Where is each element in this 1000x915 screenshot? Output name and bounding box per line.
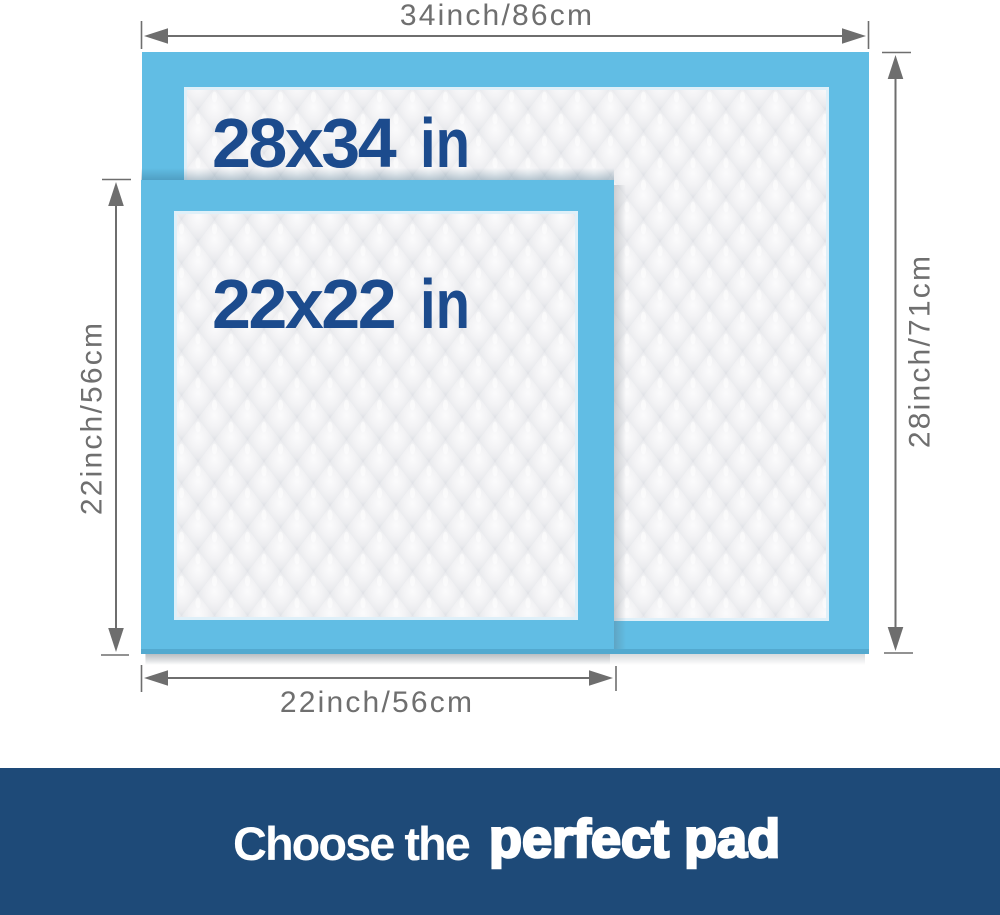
svg-text:22x22: 22x22 (212, 265, 395, 343)
svg-text:28inch/71cm: 28inch/71cm (904, 254, 937, 448)
svg-text:34inch/86cm: 34inch/86cm (400, 0, 594, 32)
svg-text:22inch/56cm: 22inch/56cm (280, 686, 474, 719)
svg-text:perfect pad: perfect pad (489, 809, 780, 869)
svg-text:22inch/56cm: 22inch/56cm (76, 321, 109, 515)
svg-text:Choose the: Choose the (233, 817, 470, 870)
svg-text:in: in (420, 265, 470, 343)
